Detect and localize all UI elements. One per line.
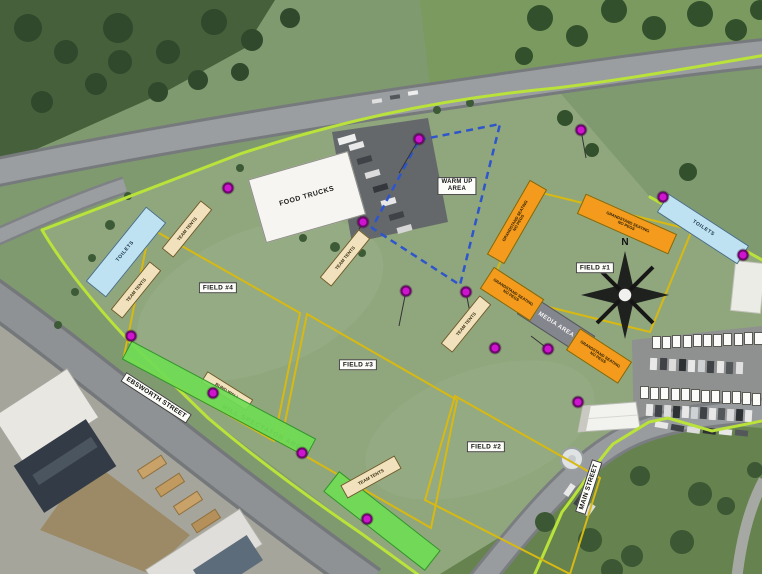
grandstand-seating-zone: GRANDSTAND SEATINGNO PEGS xyxy=(480,267,544,321)
team-tents-zone: TEAM TENTS xyxy=(320,229,371,287)
stall-bay xyxy=(660,387,669,400)
map-pin-marker xyxy=(208,388,219,399)
field-label-2: FIELD #2 xyxy=(467,441,505,452)
map-pin-marker xyxy=(543,344,554,355)
stall-bay xyxy=(723,333,732,346)
field-label-4: FIELD #4 xyxy=(199,282,237,293)
main-street-label: MAIN STREET xyxy=(575,459,603,515)
map-pin-marker xyxy=(738,250,749,261)
team-tents-zone: TEAM TENTS xyxy=(441,295,492,353)
stall-bay xyxy=(683,335,692,348)
field-label-1: FIELD #1 xyxy=(576,262,614,273)
map-pin-marker xyxy=(573,397,584,408)
stall-bay xyxy=(711,390,720,403)
toilets-zone: TOILETS xyxy=(657,194,749,265)
stall-bay xyxy=(713,334,722,347)
map-pin-marker xyxy=(576,125,587,136)
stall-bay xyxy=(693,334,702,347)
stall-bay xyxy=(640,386,649,399)
team-tents-zone: TEAM TENTS xyxy=(162,200,213,258)
map-pin-marker xyxy=(223,183,234,194)
stall-bay xyxy=(732,391,741,404)
stall-bay xyxy=(662,336,671,349)
stall-bay xyxy=(734,333,743,346)
stall-bay xyxy=(671,388,680,401)
stall-bay xyxy=(744,332,753,345)
grandstand-seating-zone: GRANDSTAND SEATINGNO PEGS xyxy=(487,180,547,264)
map-pin-marker xyxy=(401,286,412,297)
stall-bay xyxy=(754,332,762,345)
field-label-3: FIELD #3 xyxy=(339,359,377,370)
map-pin-marker xyxy=(297,448,308,459)
food-trucks-label: FOOD TRUCKS xyxy=(279,185,336,208)
map-pin-marker xyxy=(658,192,669,203)
map-pin-marker xyxy=(362,514,373,525)
team-tents-zone: TEAM TENTS xyxy=(340,455,401,498)
stall-bay xyxy=(722,391,731,404)
stall-bay xyxy=(752,393,761,406)
stall-bay xyxy=(650,387,659,400)
warm-up-area-label: WARM UP AREA xyxy=(437,177,476,195)
stall-bay xyxy=(691,389,700,402)
map-pin-marker xyxy=(358,217,369,228)
stall-bay xyxy=(672,335,681,348)
food-trucks-zone: FOOD TRUCKS xyxy=(248,151,366,243)
stall-bay xyxy=(681,388,690,401)
map-pin-marker xyxy=(490,343,501,354)
stall-bay xyxy=(742,392,751,405)
map-pin-marker xyxy=(126,331,137,342)
stall-bay xyxy=(652,336,661,349)
toilets-zone: TOILETS xyxy=(86,207,167,298)
map-pin-marker xyxy=(414,134,425,145)
event-site-map: N FOOD TRUCKS WARM UP AREA MEDIA AREA BU… xyxy=(0,0,762,574)
stall-bay xyxy=(703,334,712,347)
stall-bay xyxy=(701,390,710,403)
map-pin-marker xyxy=(461,287,472,298)
grandstand-seating-zone: GRANDSTAND SEATINGNO PEGS xyxy=(566,328,632,384)
